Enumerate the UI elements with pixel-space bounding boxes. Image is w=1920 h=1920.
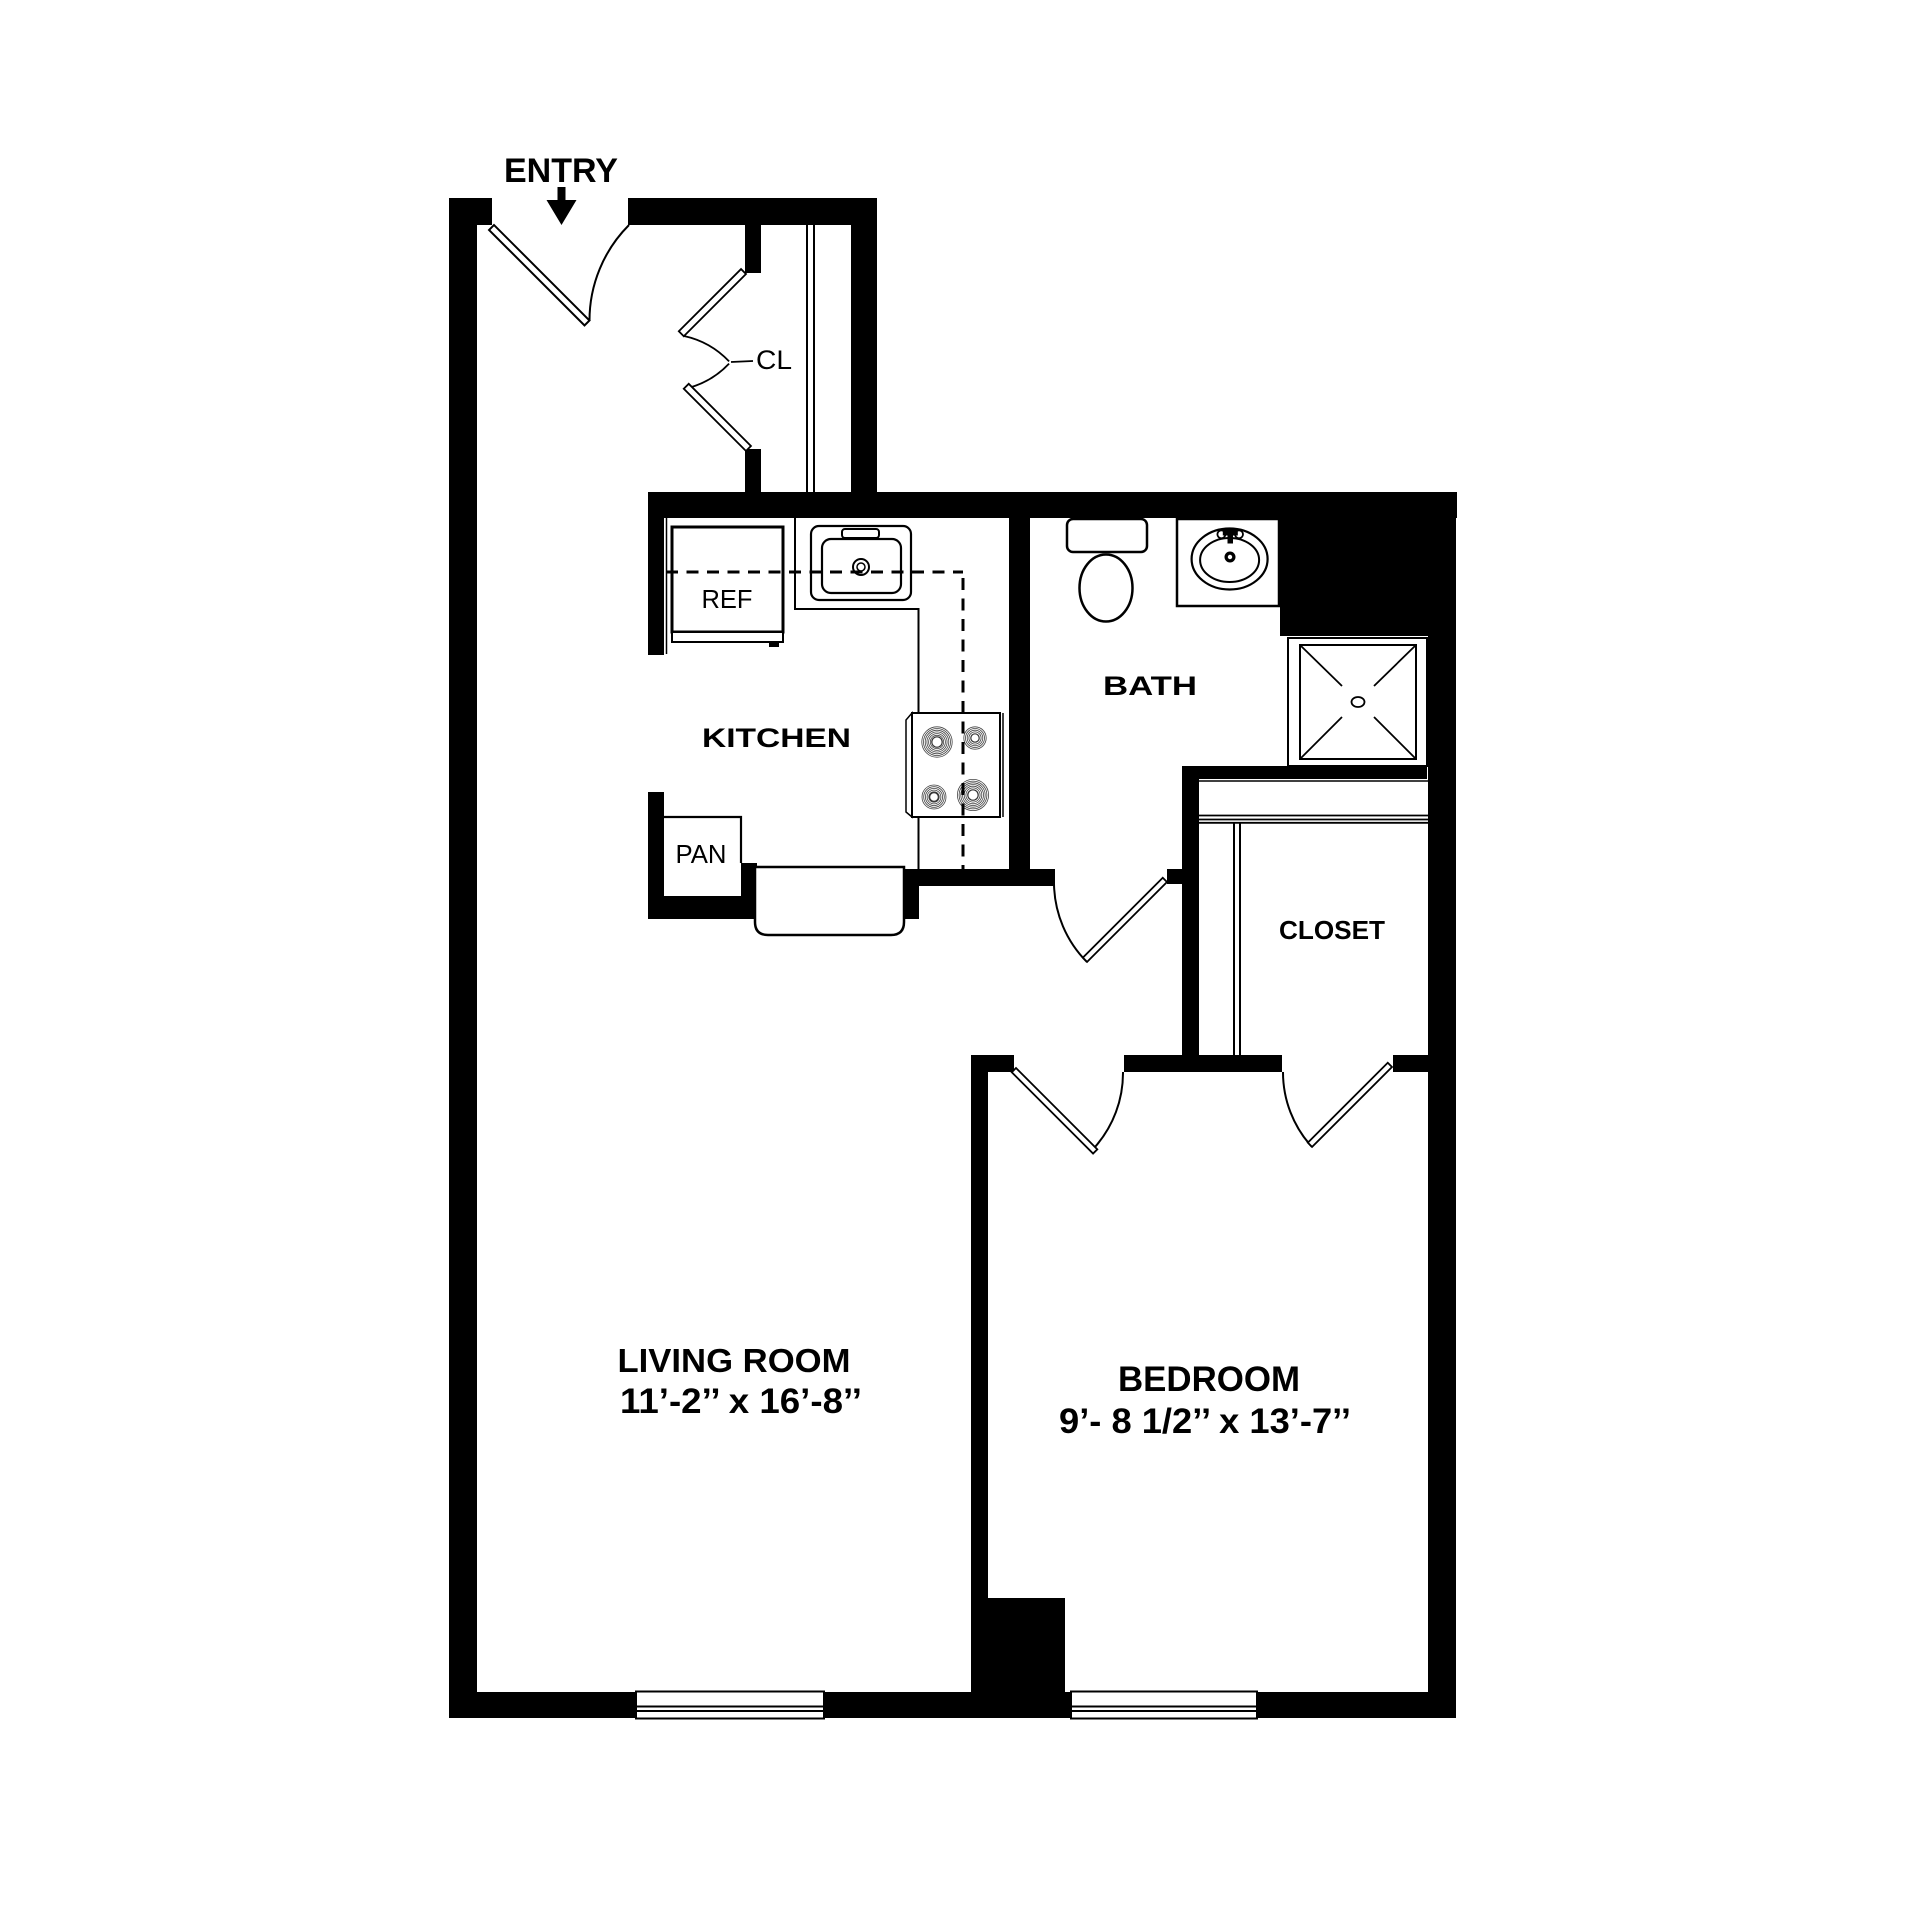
- svg-text:9’- 8 1/2’’ x 13’-7’’: 9’- 8 1/2’’ x 13’-7’’: [1059, 1402, 1351, 1441]
- svg-text:CLOSET: CLOSET: [1279, 915, 1385, 945]
- svg-text:11’-2’’ x 16’-8’’: 11’-2’’ x 16’-8’’: [620, 1382, 862, 1421]
- svg-text:BATH: BATH: [1103, 671, 1197, 701]
- svg-text:KITCHEN: KITCHEN: [702, 723, 851, 753]
- svg-text:CL: CL: [756, 345, 792, 375]
- svg-text:BEDROOM: BEDROOM: [1118, 1360, 1300, 1399]
- svg-text:ENTRY: ENTRY: [504, 152, 618, 190]
- svg-text:PAN: PAN: [676, 841, 727, 869]
- svg-text:LIVING ROOM: LIVING ROOM: [618, 1343, 851, 1380]
- svg-text:REF: REF: [702, 584, 753, 614]
